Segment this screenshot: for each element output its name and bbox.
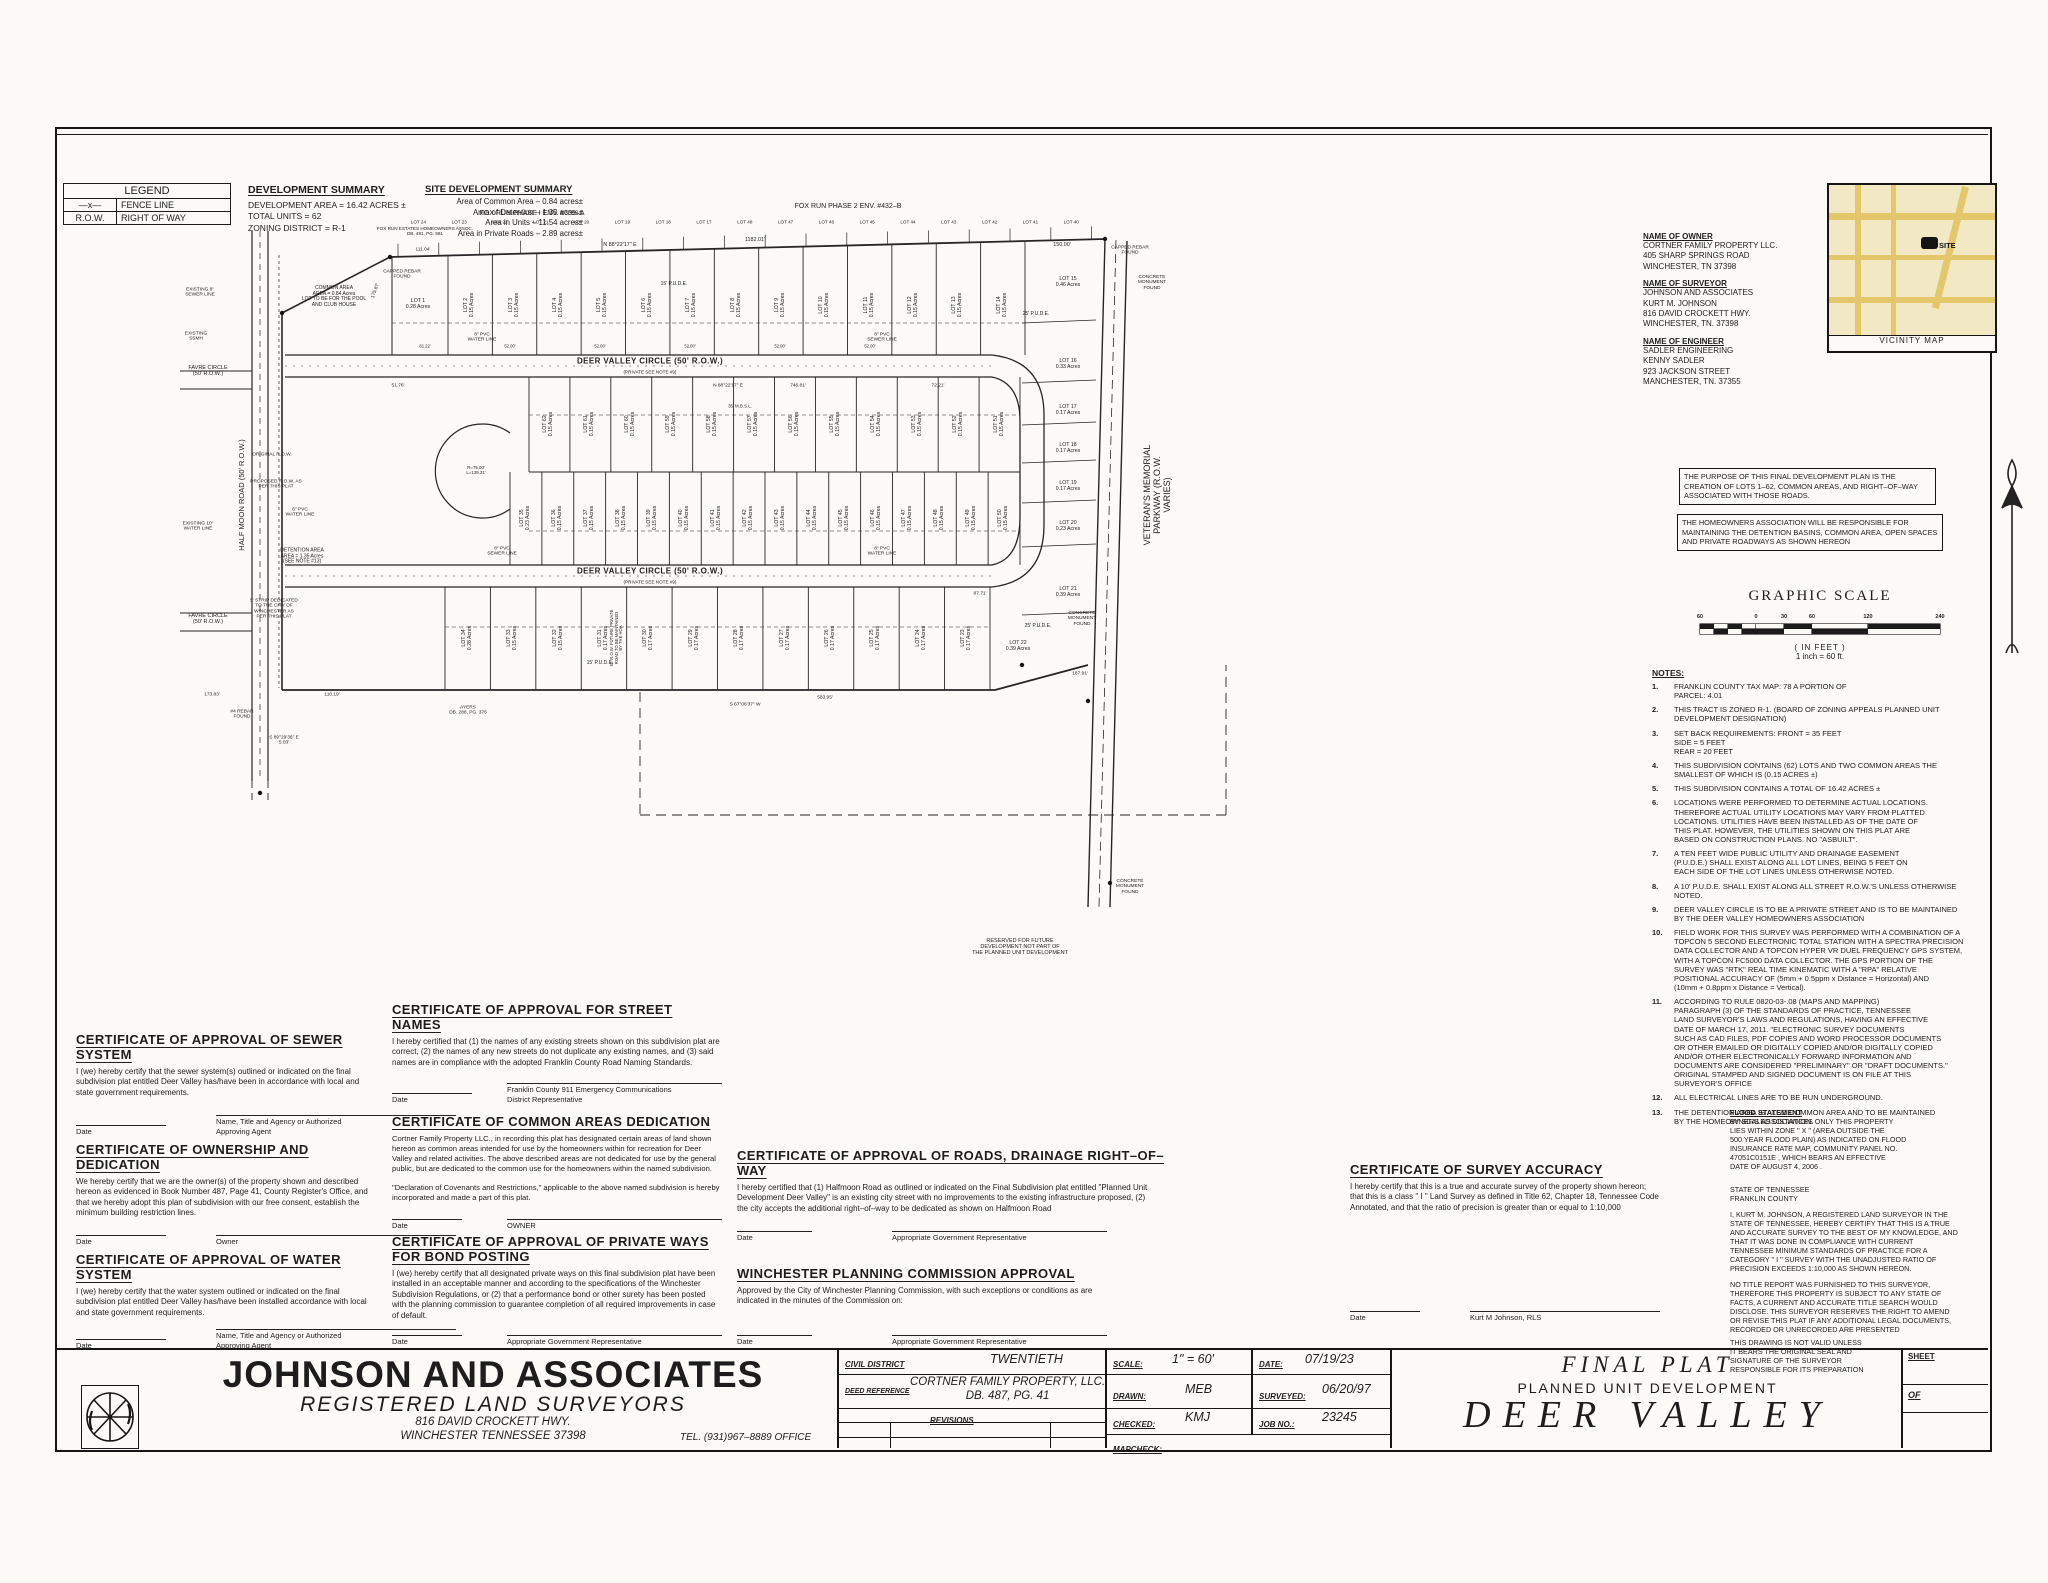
graphic-scale-bar: 6003060120240	[1700, 618, 1940, 640]
lot-label: LOT 32 0.15 Acres	[553, 626, 565, 651]
lot-label: LOT 21 0.39 Acres	[1056, 587, 1081, 599]
plat-label: 25' P.U.D.E.	[1025, 624, 1052, 630]
engineer-info: SADLER ENGINEERING KENNY SADLER 923 JACK…	[1643, 346, 1813, 388]
plat-label: CONCRETE MONUMENT FOUND	[1138, 275, 1166, 291]
tb-vline	[890, 1422, 891, 1448]
civil-district-label-text: CIVIL DISTRICT	[845, 1360, 904, 1369]
sheet-of-label: OF	[1908, 1390, 1921, 1400]
vicinity-road	[1855, 185, 1861, 351]
date-label-text: DATE:	[1259, 1360, 1283, 1369]
plat-label: (PRIVATE SEE NOTE #9)	[624, 369, 677, 374]
surveyor-statement-1: I, KURT M. JOHNSON, A REGISTERED LAND SU…	[1730, 1210, 1958, 1273]
owner-info: CORTNER FAMILY PROPERTY LLC. 405 SHARP S…	[1643, 241, 1813, 272]
note-number: 8.	[1652, 882, 1674, 900]
certificate-sewer: CERTIFICATE OF APPROVAL OF SEWER SYSTEM …	[76, 1032, 381, 1136]
lot-label: LOT 56 0.15 Acres	[789, 412, 801, 437]
lot-label: LOT 23 0.17 Acres	[961, 626, 973, 651]
scale-value: 1" = 60'	[1172, 1352, 1214, 1366]
sheet-border-inner-line	[57, 134, 1988, 135]
scale-bar-segment	[1812, 629, 1868, 634]
plat-label: FAVRE CIRCLE (50' R.O.W.)	[188, 365, 227, 377]
note-number: 3.	[1652, 729, 1674, 756]
certificate-common-areas: CERTIFICATE OF COMMON AREAS DEDICATION C…	[392, 1114, 722, 1230]
plat-label: 87.71'	[974, 591, 987, 596]
sheet-title-line3: DEER VALLEY	[1400, 1396, 1895, 1434]
plat-label: 6" PVC WATER LINE	[286, 508, 315, 519]
notes-heading: NOTES:	[1652, 668, 1982, 678]
plat-label: FAVRE CIRCLE (50' R.O.W.)	[188, 613, 227, 625]
note-item: 3.SET BACK REQUIREMENTS: FRONT = 35 FEET…	[1652, 729, 1982, 756]
sheet-box-divider	[1901, 1384, 1988, 1385]
tb-hline	[837, 1408, 1392, 1409]
signature-date: Date	[76, 1125, 166, 1136]
fox-run-lot-label: LOT 47	[778, 220, 793, 225]
lot-label: LOT 58 0.15 Acres	[707, 412, 719, 437]
note-item: 5.THIS SUBDIVISION CONTAINS A TOTAL OF 1…	[1652, 784, 1982, 793]
note-item: 9.DEER VALLEY CIRCLE IS TO BE A PRIVATE …	[1652, 905, 1982, 923]
sheet-box-divider	[1901, 1412, 1988, 1413]
plat-label: COMMON AREA AREA = 0.84 Acres LOT TO BE …	[302, 286, 366, 308]
fox-run-lot-label: LOT 43	[941, 220, 956, 225]
plat-label: 187.91'	[1072, 671, 1088, 676]
certificate-title: CERTIFICATE OF COMMON AREAS DEDICATION	[392, 1114, 722, 1129]
plat-label: 52.00'	[684, 345, 695, 350]
firm-subtitle: REGISTERED LAND SURVEYORS	[148, 1393, 838, 1416]
lot-label: LOT 30 0.17 Acres	[643, 626, 655, 651]
purpose-note-2: THE HOMEOWNERS ASSOCIATION WILL BE RESPO…	[1677, 514, 1943, 551]
note-number: 7.	[1652, 849, 1674, 876]
certificate-body: I hereby certified that (1) the names of…	[392, 1037, 720, 1068]
note-text: A 10' P.U.D.E. SHALL EXIST ALONG ALL STR…	[1674, 882, 1982, 900]
lot-label: LOT 38 0.15 Acres	[616, 506, 628, 531]
certificate-title: CERTIFICATE OF SURVEY ACCURACY	[1350, 1162, 1665, 1177]
lot-label: LOT 43 0.15 Acres	[775, 506, 787, 531]
plat-label: EXISTING 8" SEWER LINE	[185, 288, 215, 299]
lot-label: LOT 57 0.15 Acres	[748, 412, 760, 437]
scale-tick-label: 120	[1860, 614, 1876, 620]
lot-label: LOT 47 0.15 Acres	[902, 506, 914, 531]
certificate-roads: CERTIFICATE OF APPROVAL OF ROADS, DRAINA…	[737, 1148, 1167, 1242]
tb-vline	[1050, 1422, 1051, 1448]
certificate-street-names: CERTIFICATE OF APPROVAL FOR STREET NAMES…	[392, 1002, 722, 1104]
note-text: FIELD WORK FOR THIS SURVEY WAS PERFORMED…	[1674, 928, 1963, 992]
tb-vline	[1901, 1348, 1903, 1448]
purpose-note-1: THE PURPOSE OF THIS FINAL DEVELOPMENT PL…	[1679, 468, 1936, 505]
drawn-value: MEB	[1185, 1382, 1212, 1396]
lot-label: LOT 62 0.15 Acres	[543, 412, 555, 437]
plat-label: S 89°29'36" E 5.03'	[269, 736, 299, 747]
flood-heading: FLOOD STATEMENT	[1730, 1108, 1940, 1117]
note-item: 6.LOCATIONS WERE PERFORMED TO DETERMINE …	[1652, 798, 1982, 844]
lot-label: LOT 51 0.15 Acres	[994, 412, 1006, 437]
plat-label: FOX RUN PHASE 2 ENV. #432–B	[795, 203, 902, 211]
civil-district-value: TWENTIETH	[990, 1352, 1063, 1366]
plat-label: 15' P.U.D.E.	[587, 661, 614, 667]
lot-label: LOT 22 0.39 Acres	[1006, 641, 1031, 653]
certificate-title: CERTIFICATE OF APPROVAL OF SEWER SYSTEM	[76, 1032, 381, 1062]
lot-label: LOT 52 0.15 Acres	[953, 412, 965, 437]
certificate-title: CERTIFICATE OF APPROVAL OF WATER SYSTEM	[76, 1252, 381, 1282]
certificate-title: CERTIFICATE OF OWNERSHIP AND DEDICATION	[76, 1142, 381, 1172]
note-item: 4.THIS SUBDIVISION CONTAINS (62) LOTS AN…	[1652, 761, 1982, 779]
note-text: FRANKLIN COUNTY TAX MAP: 78 A PORTION OF…	[1674, 682, 1846, 700]
surveyed-label: SURVEYED:	[1259, 1386, 1306, 1404]
date-label: DATE:	[1259, 1354, 1283, 1372]
plat-label: PROPOSED R.O.W. AS PER THIS PLAT	[250, 480, 301, 491]
lot-label: LOT 59 0.15 Acres	[666, 412, 678, 437]
revisions-label-text: REVISIONS	[930, 1416, 974, 1425]
note-text: ACCORDING TO RULE 0820-03-.08 (MAPS AND …	[1674, 997, 1948, 1088]
deed-reference-label: DEED REFERENCE	[845, 1380, 910, 1398]
signature-agent: Appropriate Government Representative	[892, 1335, 1107, 1346]
fox-run-lot-label: LOT 18	[656, 220, 671, 225]
compass-logo-icon	[82, 1386, 138, 1448]
plat-label: DEER VALLEY CIRCLE (50' R.O.W.)	[577, 568, 723, 577]
tb-hline	[837, 1437, 1105, 1438]
plat-label: 1182.01'	[745, 237, 765, 243]
lot-label: LOT 8 0.15 Acres	[731, 293, 743, 318]
job-number-label: JOB NO.:	[1259, 1414, 1295, 1432]
lot-label: LOT 12 0.15 Acres	[908, 293, 920, 318]
note-text: A TEN FEET WIDE PUBLIC UTILITY AND DRAIN…	[1674, 849, 1908, 876]
graphic-scale-title: GRAPHIC SCALE	[1690, 588, 1950, 605]
note-number: 10.	[1652, 928, 1674, 992]
scale-bar-segment	[1784, 629, 1812, 634]
plat-label: 5' STRIP DEDICATED TO THE CITY OF WINCHE…	[250, 598, 298, 619]
tb-vline	[1390, 1348, 1392, 1448]
state-county: STATE OF TENNESSEE FRANKLIN COUNTY	[1730, 1185, 1950, 1203]
plat-label: N 88°22'17" E	[603, 242, 637, 248]
revisions-label: REVISIONS	[930, 1410, 974, 1428]
plat-label: 52.00'	[774, 345, 785, 350]
notes-list: 1.FRANKLIN COUNTY TAX MAP: 78 A PORTION …	[1652, 682, 1982, 1126]
lot-label: LOT 44 0.15 Acres	[807, 506, 819, 531]
scale-bar-segment	[1714, 629, 1728, 634]
lot-label: LOT 18 0.17 Acres	[1056, 443, 1081, 455]
legend-symbol: R.O.W.	[64, 212, 117, 224]
certificate-water: CERTIFICATE OF APPROVAL OF WATER SYSTEM …	[76, 1252, 381, 1350]
note-text: DEER VALLEY CIRCLE IS TO BE A PRIVATE ST…	[1674, 905, 1957, 923]
lot-label: LOT 33 0.15 Acres	[507, 626, 519, 651]
certificate-body: I hereby certify that this is a true and…	[1350, 1182, 1660, 1213]
civil-district-label: CIVIL DISTRICT	[845, 1354, 904, 1372]
plat-label: ORIGINAL R.O.W.	[252, 452, 292, 457]
plat-label: EXISTING SSMH	[185, 332, 207, 343]
lot-label: LOT 40 0.15 Acres	[679, 506, 691, 531]
scale-label-text: SCALE:	[1113, 1360, 1143, 1369]
lot-label: LOT 4 0.15 Acres	[553, 293, 565, 318]
lot-label: LOT 2 0.15 Acres	[464, 293, 476, 318]
graphic-scale-ratio: 1 inch = 60 ft.	[1690, 652, 1950, 661]
fox-run-lot-label: LOT 21	[533, 220, 548, 225]
certificate-body: I (we) hereby certify that all designate…	[392, 1269, 720, 1321]
legend-label: FENCE LINE	[117, 199, 178, 211]
scale-bar-segment	[1756, 629, 1784, 634]
plat-label: VETERAN'S MEMORIAL PARKWAY (R.O.W. VARIE…	[1142, 439, 1172, 552]
tb-vline	[1251, 1348, 1253, 1434]
lot-label: LOT 28 0.17 Acres	[734, 626, 746, 651]
owner-heading: NAME OF OWNER	[1643, 232, 1813, 241]
signature-date: Date	[392, 1093, 472, 1104]
scale-tick-label: 0	[1748, 614, 1764, 620]
lot-label: LOT 1 0.28 Acres	[406, 299, 431, 311]
plat-label: N 88°22'17" E	[713, 383, 743, 388]
fox-run-lot-label: LOT 17	[696, 220, 711, 225]
note-number: 6.	[1652, 798, 1674, 844]
signature-agent: Appropriate Government Representative	[892, 1231, 1107, 1242]
signature-agent: Appropriate Government Representative	[507, 1335, 722, 1346]
plat-label: 52.00'	[504, 345, 515, 350]
plat-label: CAPPED REBAR FOUND	[1111, 246, 1149, 257]
surveyor-heading: NAME OF SURVEYOR	[1643, 279, 1813, 288]
plat-label: 173.83'	[204, 692, 220, 697]
certificate-title: CERTIFICATE OF APPROVAL FOR STREET NAMES	[392, 1002, 722, 1032]
checked-value: KMJ	[1185, 1410, 1210, 1424]
lot-label: LOT 61 0.15 Acres	[584, 412, 596, 437]
note-number: 13.	[1652, 1108, 1674, 1126]
plat-label: 51.76'	[392, 383, 405, 388]
fox-run-lot-label: LOT 24	[411, 220, 426, 225]
lot-label: LOT 60 0.15 Acres	[625, 412, 637, 437]
fox-run-lot-label: LOT 22	[492, 220, 507, 225]
lot-label: LOT 20 0.23 Acres	[1056, 521, 1081, 533]
lot-label: LOT 5 0.15 Acres	[597, 293, 609, 318]
mapcheck-label-text: MAPCHECK:	[1113, 1445, 1162, 1454]
plat-label: 111.04'	[416, 247, 431, 252]
scale-tick-label: 240	[1932, 614, 1948, 620]
lot-label: LOT 29 0.17 Acres	[689, 626, 701, 651]
legend-label: RIGHT OF WAY	[117, 212, 190, 224]
lot-label: LOT 36 0.15 Acres	[552, 506, 564, 531]
tb-hline	[1105, 1434, 1392, 1435]
lot-label: LOT 14 0.15 Acres	[997, 293, 1009, 318]
checked-label: CHECKED:	[1113, 1414, 1155, 1432]
fox-run-lot-label: LOT 41	[1023, 220, 1038, 225]
signature-date: Date	[737, 1231, 812, 1242]
lot-label: LOT 55 0.15 Acres	[830, 412, 842, 437]
checked-label-text: CHECKED:	[1113, 1420, 1155, 1429]
plat-label: DETENTION AREA AREA = 1.35 Acres (SEE NO…	[280, 549, 324, 566]
certificate-body: I (we) hereby certify that the sewer sys…	[76, 1067, 376, 1098]
lot-label: LOT 16 0.33 Acres	[1056, 359, 1081, 371]
certificate-title: CERTIFICATE OF APPROVAL OF ROADS, DRAINA…	[737, 1148, 1167, 1178]
certificate-private-ways: CERTIFICATE OF APPROVAL OF PRIVATE WAYS …	[392, 1234, 722, 1346]
plat-label: CONCRETE MONUMENT FOUND	[1116, 879, 1144, 895]
plat-label: 8" PVC WATER LINE	[468, 333, 497, 344]
plat-label: S 67°06'37" W	[730, 702, 761, 707]
lot-label: LOT 13 0.15 Acres	[952, 293, 964, 318]
vicinity-road	[1891, 185, 1896, 351]
note-item: 1.FRANKLIN COUNTY TAX MAP: 78 A PORTION …	[1652, 682, 1982, 700]
job-number-label-text: JOB NO.:	[1259, 1420, 1295, 1429]
scale-bar-segment	[1728, 629, 1742, 634]
scale-bar-segment	[1700, 629, 1714, 634]
title-block-top-line	[55, 1348, 1988, 1350]
scale-tick-label: 60	[1692, 614, 1708, 620]
fox-run-lot-label: LOT 42	[982, 220, 997, 225]
note-item: 7.A TEN FEET WIDE PUBLIC UTILITY AND DRA…	[1652, 849, 1982, 876]
flood-statement: FLOOD STATEMENT BY SCALED DISTANCES ONLY…	[1730, 1108, 1940, 1171]
lot-label: LOT 39 0.15 Acres	[647, 506, 659, 531]
lot-label: LOT 35 0.23 Acres	[520, 506, 532, 531]
signature-surveyor: Kurt M Johnson, RLS	[1470, 1311, 1660, 1322]
plat-label: R=75.00' L=139.31'	[466, 466, 485, 476]
certificate-title: WINCHESTER PLANNING COMMISSION APPROVAL	[737, 1266, 1157, 1281]
note-number: 9.	[1652, 905, 1674, 923]
fox-run-lot-label: LOT 44	[900, 220, 915, 225]
plat-label: 52.00'	[864, 345, 875, 350]
lot-label: LOT 54 0.15 Acres	[871, 412, 883, 437]
plat-label: RESERVED FOR FUTURE DEVELOPMENT NOT PART…	[972, 938, 1068, 956]
note-number: 2.	[1652, 705, 1674, 723]
lot-label: LOT 37 0.15 Acres	[584, 506, 596, 531]
fox-run-lot-label: LOT 19	[615, 220, 630, 225]
lot-label: LOT 46 0.15 Acres	[871, 506, 883, 531]
lot-label: LOT 17 0.17 Acres	[1056, 405, 1081, 417]
vicinity-road	[1829, 297, 1995, 303]
scale-bar-segment	[1742, 629, 1756, 634]
plat-label: EXISTING 10" WATER LINE	[183, 522, 214, 533]
certificate-ownership: CERTIFICATE OF OWNERSHIP AND DEDICATION …	[76, 1142, 381, 1246]
note-text: ALL ELECTRICAL LINES ARE TO BE RUN UNDER…	[1674, 1093, 1883, 1102]
firm-phone: TEL. (931)967–8889 OFFICE	[680, 1432, 811, 1443]
plat-label: CONCRETE MONUMENT FOUND	[1068, 611, 1096, 627]
signature-date: Date	[1350, 1311, 1420, 1322]
plat-label: AYERS DB. 288, PG. 376	[449, 706, 487, 717]
plat-label: 35' M.B.S.L.	[728, 405, 752, 410]
plat-label: 72.21'	[932, 383, 945, 388]
certificate-body: I hereby certified that (1) Halfmoon Roa…	[737, 1183, 1157, 1214]
drawn-label-text: DRAWN:	[1113, 1392, 1146, 1401]
date-value: 07/19/23	[1305, 1352, 1354, 1366]
plat-label: 583.95'	[817, 695, 833, 700]
signature-agent: Franklin County 911 Emergency Communicat…	[507, 1083, 722, 1104]
lot-label: LOT 6 0.15 Acres	[642, 293, 654, 318]
firm-address1: 816 DAVID CROCKETT HWY.	[148, 1416, 838, 1430]
vicinity-site-label: SITE	[1939, 241, 1956, 250]
signature-date: Date	[76, 1235, 166, 1246]
fox-run-lot-label: LOT 46	[819, 220, 834, 225]
signature-owner: OWNER	[507, 1219, 722, 1230]
notes: NOTES: 1.FRANKLIN COUNTY TAX MAP: 78 A P…	[1652, 668, 1982, 1131]
plat-label: FOX RUN PHASE I ENV. #339–A	[480, 210, 585, 218]
note-text: SET BACK REQUIREMENTS: FRONT = 35 FEET S…	[1674, 729, 1841, 756]
plat-label: CAPPED REBAR FOUND	[383, 270, 421, 281]
plat-label: DEER VALLEY CIRCLE (50' R.O.W.)	[577, 358, 723, 367]
certificate-planning: WINCHESTER PLANNING COMMISSION APPROVAL …	[737, 1266, 1157, 1346]
job-number-value: 23245	[1322, 1410, 1357, 1424]
vicinity-map: SITE VICINITY MAP	[1827, 183, 1997, 353]
note-number: 5.	[1652, 784, 1674, 793]
engineer-heading: NAME OF ENGINEER	[1643, 337, 1813, 346]
lot-label: LOT 41 0.15 Acres	[711, 506, 723, 531]
certificate-title: CERTIFICATE OF APPROVAL OF PRIVATE WAYS …	[392, 1234, 722, 1264]
fox-run-lot-label: LOT 45	[860, 220, 875, 225]
lot-label: LOT 11 0.15 Acres	[864, 293, 876, 318]
note-item: 8.A 10' P.U.D.E. SHALL EXIST ALONG ALL S…	[1652, 882, 1982, 900]
plat-label: HALF MOON ROAD (50' R.O.W.)	[238, 439, 246, 550]
lot-label: LOT 26 0.17 Acres	[825, 626, 837, 651]
plat-label: 25' P.U.D.E.	[1023, 312, 1050, 318]
lot-label: LOT 49 0.15 Acres	[966, 506, 978, 531]
signature-date: Date	[392, 1219, 462, 1230]
note-item: 11.ACCORDING TO RULE 0820-03-.08 (MAPS A…	[1652, 997, 1982, 1088]
note-number: 12.	[1652, 1093, 1674, 1102]
deed-reference-label-text: DEED REFERENCE	[845, 1388, 910, 1395]
signature-date: Date	[737, 1335, 812, 1346]
plat-label: 81.22'	[419, 345, 430, 350]
lot-label: LOT 45 0.15 Acres	[839, 506, 851, 531]
note-number: 4.	[1652, 761, 1674, 779]
surveyor-statement-2: NO TITLE REPORT WAS FURNISHED TO THIS SU…	[1730, 1280, 1958, 1334]
plat-label: 110.19'	[324, 692, 339, 697]
plat-label: 150.00'	[1053, 242, 1071, 248]
plat-labels-layer: FOX RUN PHASE I ENV. #339–AFOX RUN PHASE…	[180, 195, 1270, 1025]
firm-name: JOHNSON AND ASSOCIATES	[148, 1356, 838, 1393]
plat-label: (PRIVATE SEE NOTE #9)	[624, 579, 677, 584]
lot-label: LOT 19 0.17 Acres	[1056, 481, 1081, 493]
note-text: THIS TRACT IS ZONED R-1. (BOARD OF ZONIN…	[1674, 705, 1940, 723]
lot-label: LOT 50 0.15 Acres	[998, 506, 1010, 531]
note-item: 2.THIS TRACT IS ZONED R-1. (BOARD OF ZON…	[1652, 705, 1982, 723]
vicinity-map-caption: VICINITY MAP	[1829, 335, 1995, 351]
lot-label: LOT 9 0.15 Acres	[775, 293, 787, 318]
plat-label: 15' P.U.D.E.	[661, 282, 688, 288]
lot-label: LOT 34 0.28 Acres	[462, 626, 474, 651]
certificate-body: Cortner Family Property LLC., in recordi…	[392, 1134, 720, 1203]
note-item: 10.FIELD WORK FOR THIS SURVEY WAS PERFOR…	[1652, 928, 1982, 992]
surveyed-label-text: SURVEYED:	[1259, 1392, 1306, 1401]
lot-label: LOT 27 0.17 Acres	[780, 626, 792, 651]
flood-body: BY SCALED DISTANCES ONLY THIS PROPERTY L…	[1730, 1117, 1940, 1171]
sheet-title: FINAL PLAT PLANNED UNIT DEVELOPMENT DEER…	[1400, 1352, 1895, 1434]
lot-label: LOT 25 0.17 Acres	[870, 626, 882, 651]
lot-label: LOT 48 0.15 Acres	[934, 506, 946, 531]
plat-label: 8" PVC WATER LINE	[868, 547, 897, 558]
lot-label: LOT 24 0.17 Acres	[916, 626, 928, 651]
surveyed-value: 06/20/97	[1322, 1382, 1371, 1396]
lot-label: LOT 42 0.15 Acres	[743, 506, 755, 531]
plat-label: 746.81'	[790, 383, 806, 388]
certificate-body: We hereby certify that we are the owner(…	[76, 1177, 376, 1219]
fox-run-lot-label: LOT 40	[1064, 220, 1079, 225]
plat-label: 175.87'	[371, 283, 381, 299]
mapcheck-label: MAPCHECK:	[1113, 1439, 1162, 1457]
firm-block: JOHNSON AND ASSOCIATES REGISTERED LAND S…	[148, 1356, 838, 1444]
plat-drawing: FOX RUN PHASE I ENV. #339–AFOX RUN PHASE…	[180, 195, 1270, 1025]
lot-label: LOT 3 0.15 Acres	[509, 293, 521, 318]
sheet-label: SHEET	[1908, 1352, 1935, 1361]
note-number: 11.	[1652, 997, 1674, 1088]
firm-logo	[81, 1385, 139, 1449]
note-text: THIS SUBDIVISION CONTAINS A TOTAL OF 16.…	[1674, 784, 1880, 793]
vicinity-site-marker	[1921, 237, 1938, 249]
plat-label: 8" PVC SEWER LINE	[487, 547, 517, 558]
note-text: THIS SUBDIVISION CONTAINS (62) LOTS AND …	[1674, 761, 1937, 779]
graphic-scale-units: ( IN FEET )	[1690, 643, 1950, 652]
deed-reference-value: CORTNER FAMILY PROPERTY, LLC. DB. 487, P…	[910, 1376, 1105, 1404]
vicinity-road	[1829, 255, 1995, 260]
note-item: 12.ALL ELECTRICAL LINES ARE TO BE RUN UN…	[1652, 1093, 1982, 1102]
scale-bar-segment	[1868, 629, 1940, 634]
fox-run-lot-label: LOT 48	[737, 220, 752, 225]
drawn-label: DRAWN:	[1113, 1386, 1146, 1404]
plat-label: #4 REBAR FOUND	[230, 710, 253, 721]
vicinity-road	[1829, 213, 1995, 220]
legend-symbol: —x—	[64, 199, 117, 211]
lot-label: LOT 10 0.15 Acres	[819, 293, 831, 318]
certificate-body: I (we) hereby certify that the water sys…	[76, 1287, 376, 1318]
